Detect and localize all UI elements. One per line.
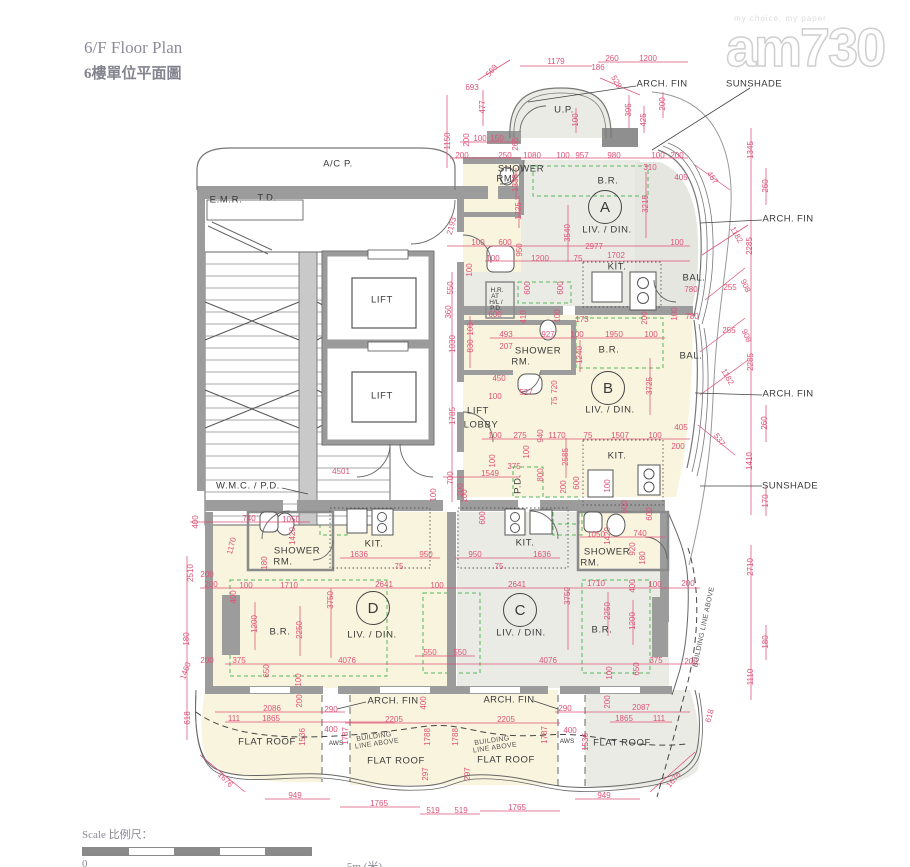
dimension-label: 1420: [604, 527, 612, 545]
dimension-label: 100: [644, 331, 657, 339]
dimension-label: 1710: [280, 582, 298, 590]
dimension-label: 180: [762, 635, 770, 648]
dimension-label: 1788: [452, 728, 460, 746]
small-label: AWS: [560, 739, 575, 746]
dimension-label: 4076: [338, 657, 356, 665]
room-label: FLAT ROOF: [593, 738, 651, 748]
room-label: B.R.: [599, 345, 620, 355]
dimension-label: 1030: [449, 335, 457, 353]
dimension-label: 2250: [296, 621, 304, 639]
dimension-label: 200: [560, 480, 568, 493]
scale-start: 0: [82, 858, 88, 867]
room-label: FLAT ROOF: [477, 755, 535, 765]
room-label: U.P.: [554, 105, 574, 115]
scale-bar: Scale 比例尺： 0 5m (米): [82, 826, 382, 867]
floor-plan-page: 6935691179186260120052947710039520042511…: [0, 0, 910, 867]
dimension-label: 1050: [282, 516, 300, 524]
dimension-label: 100: [606, 666, 614, 679]
dimension-label: 1507: [611, 432, 629, 440]
dimension-label: 550: [423, 649, 436, 657]
dimension-label: 200: [200, 571, 213, 579]
dimension-label: 250: [498, 152, 511, 160]
dimension-label: 950: [419, 551, 432, 559]
dimension-label: 1536: [582, 733, 590, 751]
dimension-label: 1549: [481, 470, 499, 478]
page-title-en: 6/F Floor Plan: [84, 38, 182, 58]
room-label: RM.: [580, 558, 599, 568]
dimension-label: 100: [670, 239, 683, 247]
room-label: KIT.: [608, 262, 627, 272]
lift-shafts: [322, 250, 434, 445]
small-label: P.D.: [490, 306, 502, 313]
room-label: LIV. / DIN.: [582, 225, 632, 235]
dimension-label: 100: [671, 307, 679, 320]
dimension-label: 180: [261, 556, 269, 569]
dimension-label: 700: [447, 471, 455, 484]
dimension-label: 75: [551, 397, 559, 406]
dimension-label: 1636: [533, 551, 551, 559]
dimension-label: 150: [490, 135, 503, 143]
room-label: FLAT ROOF: [367, 756, 425, 766]
dimension-label: 100: [471, 239, 484, 247]
dimension-label: 375: [507, 463, 520, 471]
dimension-label: 75: [584, 432, 593, 440]
room-label: RM.: [273, 557, 292, 567]
dimension-label: 400: [230, 590, 238, 603]
unit-circle-A: A: [588, 190, 622, 224]
room-label: SHOWER: [274, 546, 320, 556]
room-label: BAL.: [680, 351, 703, 361]
dimension-label: 2641: [508, 581, 526, 589]
annotation-label: SUNSHADE: [762, 481, 818, 491]
dimension-label: 200: [457, 483, 465, 496]
dimension-label: 100: [572, 113, 580, 126]
dimension-label: 410: [520, 310, 528, 323]
dimension-label: 100: [570, 331, 583, 339]
dimension-label: 255: [722, 327, 735, 335]
dimension-label: 1536: [299, 728, 307, 746]
dimension-label: 1420: [289, 527, 297, 545]
dimension-label: 2205: [385, 716, 403, 724]
dimension-label: 200: [681, 580, 694, 588]
dimension-label: 75: [574, 255, 583, 263]
dimension-label: 100: [467, 322, 475, 335]
dimension-label: 3215: [642, 195, 650, 213]
dimension-label: 200: [604, 695, 612, 708]
dimension-label: 1702: [607, 252, 625, 260]
dimension-label: 405: [674, 424, 687, 432]
dimension-label: 519: [454, 807, 467, 815]
dimension-label: 940: [537, 429, 545, 442]
unit-circle-C: C: [503, 593, 537, 627]
dimension-label: 957: [575, 152, 588, 160]
dimension-label: 290: [324, 706, 337, 714]
room-label: A/C P.: [323, 159, 353, 169]
dimension-label: 200: [296, 694, 304, 707]
dimension-label: 618: [184, 711, 192, 724]
dimension-label: 550: [453, 649, 466, 657]
dimension-label: 600: [479, 511, 487, 524]
dimension-label: 100: [473, 135, 486, 143]
dimension-label: 4076: [539, 657, 557, 665]
small-label: AWS: [329, 741, 344, 748]
dimension-label: 100: [486, 255, 499, 263]
dimension-label: 1200: [629, 612, 637, 630]
dimension-label: 100: [648, 581, 661, 589]
dimension-label: 400: [563, 727, 576, 735]
dimension-label: 375: [232, 657, 245, 665]
dimension-label: 1150: [444, 132, 452, 149]
room-label: LIFT: [371, 295, 393, 305]
room-label: LIV. / DIN.: [496, 628, 546, 638]
dimension-label: 260: [605, 55, 618, 63]
room-label: SHOWER: [515, 346, 561, 356]
dimension-label: 2205: [497, 716, 515, 724]
dimension-label: 425: [640, 113, 648, 126]
unit-circle-D: D: [356, 591, 390, 625]
dimension-label: 780: [685, 313, 698, 321]
dimension-label: 255: [723, 284, 736, 292]
dimension-label: 740: [633, 530, 646, 538]
scale-end: 5m (米): [347, 858, 382, 867]
dimension-label: 477: [479, 100, 487, 113]
dimension-label: 600: [557, 281, 565, 294]
dimension-label: 297: [422, 767, 430, 780]
dimension-label: 600: [646, 507, 654, 520]
dimension-label: 650: [633, 662, 641, 675]
dimension-label: 693: [465, 84, 478, 92]
dimension-label: 173: [575, 316, 588, 324]
dimension-label: 100: [556, 152, 569, 160]
title-block: 6/F Floor Plan 6樓單位平面圖: [84, 38, 182, 83]
dimension-label: 100: [295, 673, 303, 686]
dimension-label: 1200: [251, 615, 259, 633]
dimension-label: 3725: [646, 377, 654, 395]
dimension-label: 100: [554, 309, 562, 322]
dimension-label: 100: [488, 393, 501, 401]
dimension-label: 493: [499, 331, 512, 339]
dimension-label: 2087: [632, 704, 650, 712]
page-title-zh: 6樓單位平面圖: [84, 62, 182, 83]
dimension-label: 980: [607, 152, 620, 160]
dimension-label: 100: [430, 488, 438, 501]
am730-watermark: my choice, my paper am730: [726, 14, 906, 74]
annotation-label: ARCH. FIN: [762, 214, 813, 224]
dimension-label: 375: [649, 657, 662, 665]
dimension-label: 949: [288, 792, 301, 800]
dimension-label: 1765: [370, 800, 388, 808]
dimension-label: 1865: [262, 715, 280, 723]
room-label: KIT.: [516, 538, 535, 548]
dimension-label: 800: [537, 468, 545, 481]
dimension-label: 200: [463, 133, 471, 146]
dimension-label: 290: [558, 705, 571, 713]
dimension-label: 400: [420, 696, 428, 709]
dimension-label: 200: [204, 581, 217, 589]
dimension-label: 260: [761, 416, 769, 429]
dimension-label: 830: [467, 339, 475, 352]
dimension-label: 297: [464, 767, 472, 780]
dimension-label: 100: [523, 445, 531, 458]
room-label: LIFT: [371, 391, 393, 401]
room-label: FLAT ROOF: [238, 737, 296, 747]
dimension-label: 2710: [747, 558, 755, 576]
dimension-label: 927: [541, 331, 554, 339]
dimension-label: 75: [395, 563, 404, 571]
dimension-label: 3750: [327, 591, 335, 609]
dimension-label: 111: [228, 715, 240, 723]
dimension-label: 527: [519, 389, 532, 397]
annotation-label: ARCH. FIN: [762, 389, 813, 399]
dimension-label: 1170: [548, 432, 565, 440]
dimension-label: 450: [492, 375, 505, 383]
dimension-label: 1179: [547, 58, 564, 66]
dimension-label: 100: [604, 479, 612, 492]
scale-label: Scale 比例尺：: [82, 826, 382, 842]
dimension-label: 405: [674, 174, 687, 182]
dimension-label: 200: [641, 311, 649, 324]
dimension-label: 360: [445, 305, 453, 318]
dimension-label: 720: [551, 380, 559, 393]
dimension-label: 600: [621, 500, 629, 513]
dimension-label: 310: [643, 164, 656, 172]
dimension-label: 650: [263, 664, 271, 677]
dimension-label: 2285: [746, 237, 754, 255]
room-label: E.M.R.: [210, 195, 243, 205]
dimension-label: 207: [499, 343, 512, 351]
dimension-label: 519: [426, 807, 439, 815]
dimension-label: 200: [670, 152, 683, 160]
dimension-label: 400: [192, 515, 200, 528]
dimension-label: 1865: [615, 715, 633, 723]
dimension-label: 1765: [508, 804, 526, 812]
dimension-label: 1636: [350, 551, 368, 559]
am730-logo: am730: [726, 23, 906, 74]
room-label: W.M.C. / P.D.: [216, 481, 280, 491]
dimension-label: 2510: [187, 564, 195, 582]
dimension-label: 600: [573, 476, 581, 489]
room-label: RM.: [511, 357, 530, 367]
dimension-label: 400: [324, 726, 337, 734]
dimension-label: 1710: [587, 580, 605, 588]
dimension-label: 75: [495, 563, 504, 571]
dimension-label: 200: [659, 97, 667, 110]
dimension-label: 395: [625, 103, 633, 116]
dimension-label: 100: [239, 582, 252, 590]
dimension-label: 2641: [375, 581, 393, 589]
dimension-label: 920: [629, 542, 637, 555]
room-label: RM.: [496, 174, 515, 184]
room-label: KIT.: [365, 539, 384, 549]
dimension-label: 740: [242, 515, 255, 523]
dimension-label: 3540: [564, 224, 572, 242]
room-label: LIV. / DIN.: [585, 405, 635, 415]
dimension-label: 1200: [531, 255, 549, 263]
dimension-label: 1345: [747, 141, 755, 159]
dimension-label: 180: [183, 632, 191, 645]
dimension-label: 1080: [523, 152, 541, 160]
room-label: KIT.: [608, 451, 627, 461]
dimension-label: 100: [489, 454, 497, 467]
room-label: LOBBY: [464, 420, 499, 430]
dimension-label: 1200: [639, 55, 657, 63]
dimension-label: 170: [762, 494, 770, 507]
dimension-label: 949: [597, 792, 610, 800]
dimension-label: 1110: [747, 669, 755, 686]
annotation-label: ARCH. FIN: [483, 695, 534, 705]
room-label: B.R.: [270, 627, 291, 637]
dimension-label: 2977: [585, 243, 603, 251]
scale-bar-graphic: [82, 847, 312, 856]
dimension-label: 100: [488, 432, 501, 440]
dimension-label: 100: [466, 263, 474, 276]
dimension-label: 1240: [576, 346, 584, 364]
dimension-label: 2250: [604, 602, 612, 620]
dimension-label: 1788: [424, 728, 432, 746]
dimension-label: 111: [653, 715, 665, 723]
annotation-label: ARCH. FIN: [636, 79, 687, 89]
dimension-label: 2285: [747, 353, 755, 371]
dimension-label: 400: [629, 579, 637, 592]
dimension-label: 265: [512, 137, 520, 150]
dimension-label: 186: [591, 64, 604, 72]
dimension-label: 2086: [263, 705, 281, 713]
room-label: T.D.: [257, 193, 276, 203]
dimension-label: 180: [639, 551, 647, 564]
dimension-label: 600: [524, 281, 532, 294]
annotation-label: SUNSHADE: [726, 79, 782, 89]
room-label: LIV. / DIN.: [347, 630, 397, 640]
dimension-label: 1410: [746, 452, 754, 470]
dimension-label: 600: [498, 239, 511, 247]
room-label: LIFT: [467, 406, 489, 416]
room-label: SHOWER: [584, 547, 630, 557]
dimension-label: 950: [468, 551, 481, 559]
dimension-label: 260: [762, 179, 770, 192]
dimension-label: 100: [651, 152, 664, 160]
dimension-label: 200: [455, 152, 468, 160]
dimension-label: 4501: [332, 468, 350, 476]
dimension-label: 3750: [564, 587, 572, 605]
dimension-label: 1950: [605, 331, 623, 339]
dimension-label: 2585: [562, 448, 570, 466]
dimension-label: 950: [516, 243, 524, 256]
room-label: BAL.: [683, 273, 706, 283]
dimension-label: 275: [513, 432, 526, 440]
dimension-label: 100: [648, 432, 661, 440]
dimension-label: 780: [684, 286, 697, 294]
room-label: B.R.: [592, 625, 613, 635]
room-label: B.R.: [598, 176, 619, 186]
dimension-label: 200: [671, 443, 684, 451]
dimension-label: 100: [430, 582, 443, 590]
room-label: P.D.: [513, 474, 523, 494]
annotation-label: ARCH. FIN: [367, 696, 418, 706]
dimension-label: 1725: [515, 202, 523, 220]
dimension-label: 1785: [449, 407, 457, 425]
dimension-label: 1787: [541, 726, 549, 744]
unit-circle-B: B: [591, 371, 625, 405]
dimension-label: 550: [447, 281, 455, 294]
dimension-label: 200: [200, 657, 213, 665]
